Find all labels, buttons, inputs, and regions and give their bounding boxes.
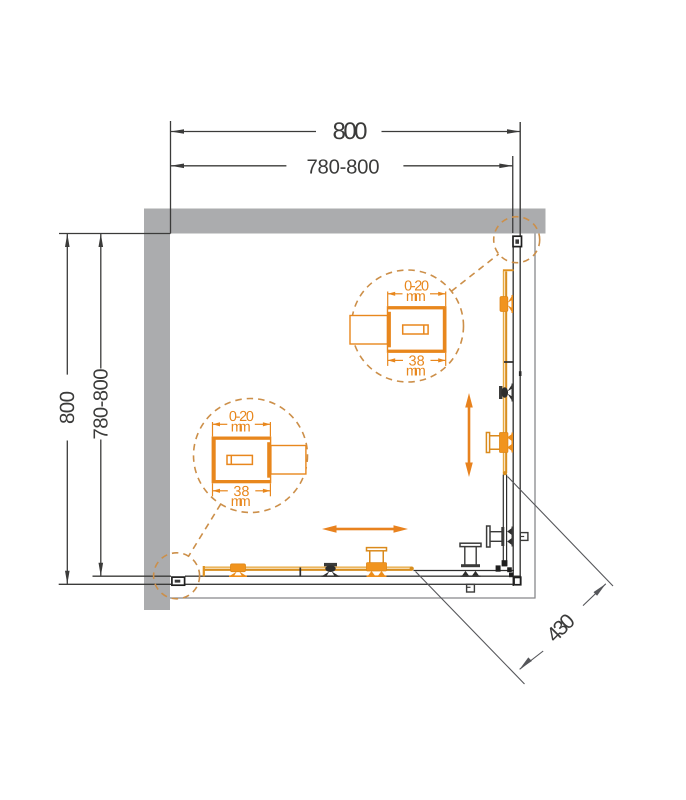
- svg-text:780-800: 780-800: [307, 156, 380, 178]
- svg-text:780-800: 780-800: [91, 369, 113, 440]
- svg-text:mm: mm: [231, 419, 251, 435]
- svg-text:mm: mm: [406, 289, 426, 305]
- svg-text:mm: mm: [231, 494, 251, 510]
- svg-text:800: 800: [56, 391, 79, 424]
- svg-text:800: 800: [333, 118, 368, 145]
- svg-text:mm: mm: [406, 364, 426, 380]
